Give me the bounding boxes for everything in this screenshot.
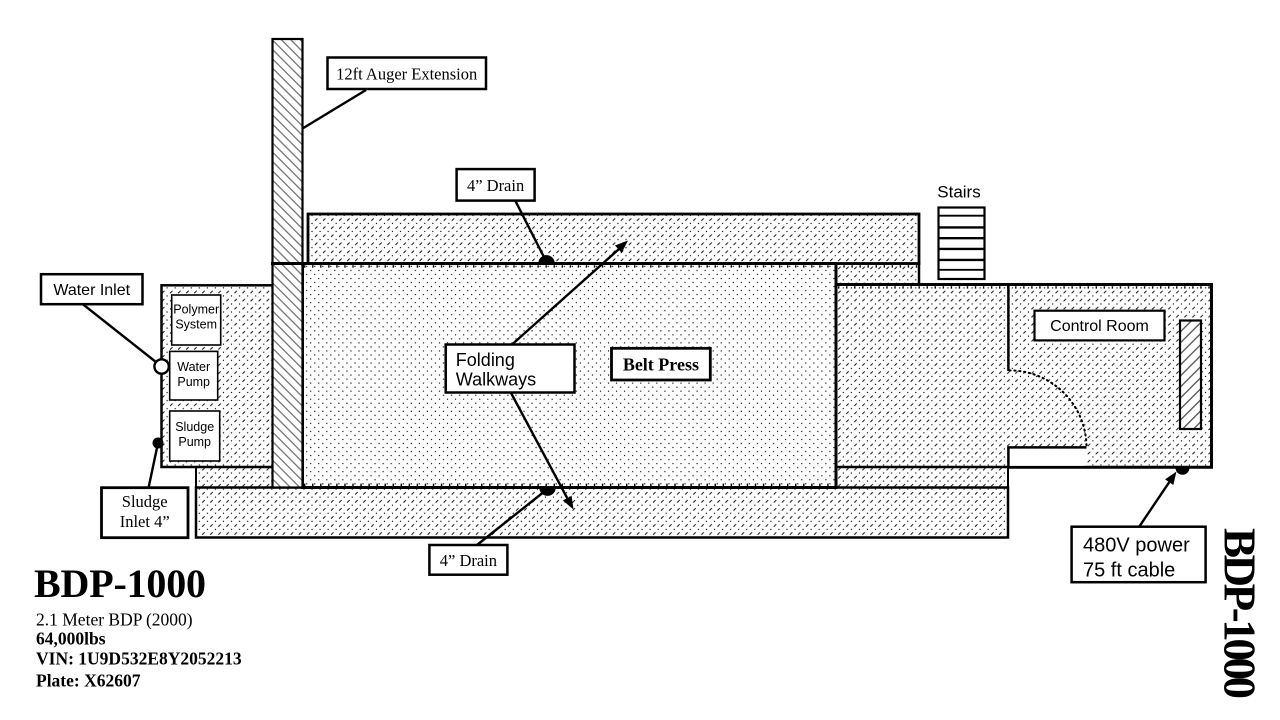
svg-text:Inlet 4”: Inlet 4” — [120, 512, 170, 531]
svg-text:4” Drain: 4” Drain — [440, 551, 497, 570]
svg-text:Pump: Pump — [177, 375, 210, 389]
svg-text:4” Drain: 4” Drain — [467, 176, 524, 195]
svg-text:480V power: 480V power — [1083, 535, 1190, 557]
svg-text:75 ft cable: 75 ft cable — [1083, 560, 1175, 582]
svg-text:Water Inlet: Water Inlet — [53, 282, 130, 299]
svg-text:BDP-1000: BDP-1000 — [34, 561, 206, 606]
svg-text:System: System — [175, 318, 217, 332]
svg-text:Stairs: Stairs — [937, 183, 980, 202]
svg-text:Plate: X62607: Plate: X62607 — [36, 671, 141, 691]
svg-text:Pump: Pump — [178, 435, 211, 449]
svg-text:Control Room: Control Room — [1050, 318, 1149, 335]
svg-text:Walkways: Walkways — [456, 370, 536, 390]
svg-text:Water: Water — [177, 360, 210, 374]
svg-text:VIN: 1U9D532E8Y2052213: VIN: 1U9D532E8Y2052213 — [36, 649, 242, 669]
svg-text:64,000lbs: 64,000lbs — [36, 628, 106, 648]
svg-text:Sludge: Sludge — [175, 420, 214, 434]
svg-text:Polymer: Polymer — [173, 303, 219, 317]
svg-text:BDP-1000: BDP-1000 — [1215, 528, 1265, 699]
svg-text:Belt Press: Belt Press — [623, 355, 699, 375]
svg-text:12ft Auger Extension: 12ft Auger Extension — [336, 65, 477, 84]
svg-text:Folding: Folding — [456, 350, 515, 370]
svg-text:Sludge: Sludge — [122, 492, 168, 511]
svg-text:2.1 Meter BDP (2000): 2.1 Meter BDP (2000) — [36, 610, 193, 630]
